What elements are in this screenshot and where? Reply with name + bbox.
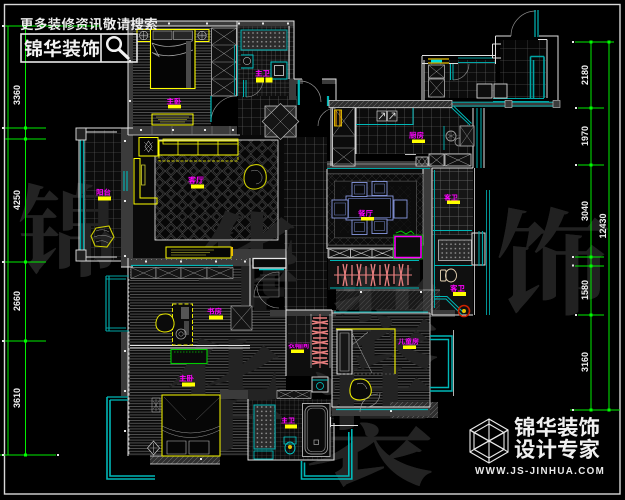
- svg-text:1580: 1580: [580, 280, 590, 300]
- svg-text:3610: 3610: [12, 388, 22, 408]
- svg-text:WWW.JS-JINHUA.COM: WWW.JS-JINHUA.COM: [475, 466, 605, 477]
- svg-text:2180: 2180: [580, 65, 590, 85]
- svg-text:1970: 1970: [580, 126, 590, 146]
- svg-text:12430: 12430: [598, 213, 608, 238]
- svg-text:3360: 3360: [12, 85, 22, 105]
- svg-text:3160: 3160: [580, 352, 590, 372]
- svg-text:3040: 3040: [580, 201, 590, 221]
- svg-text:2660: 2660: [12, 291, 22, 311]
- svg-text:4250: 4250: [12, 190, 22, 210]
